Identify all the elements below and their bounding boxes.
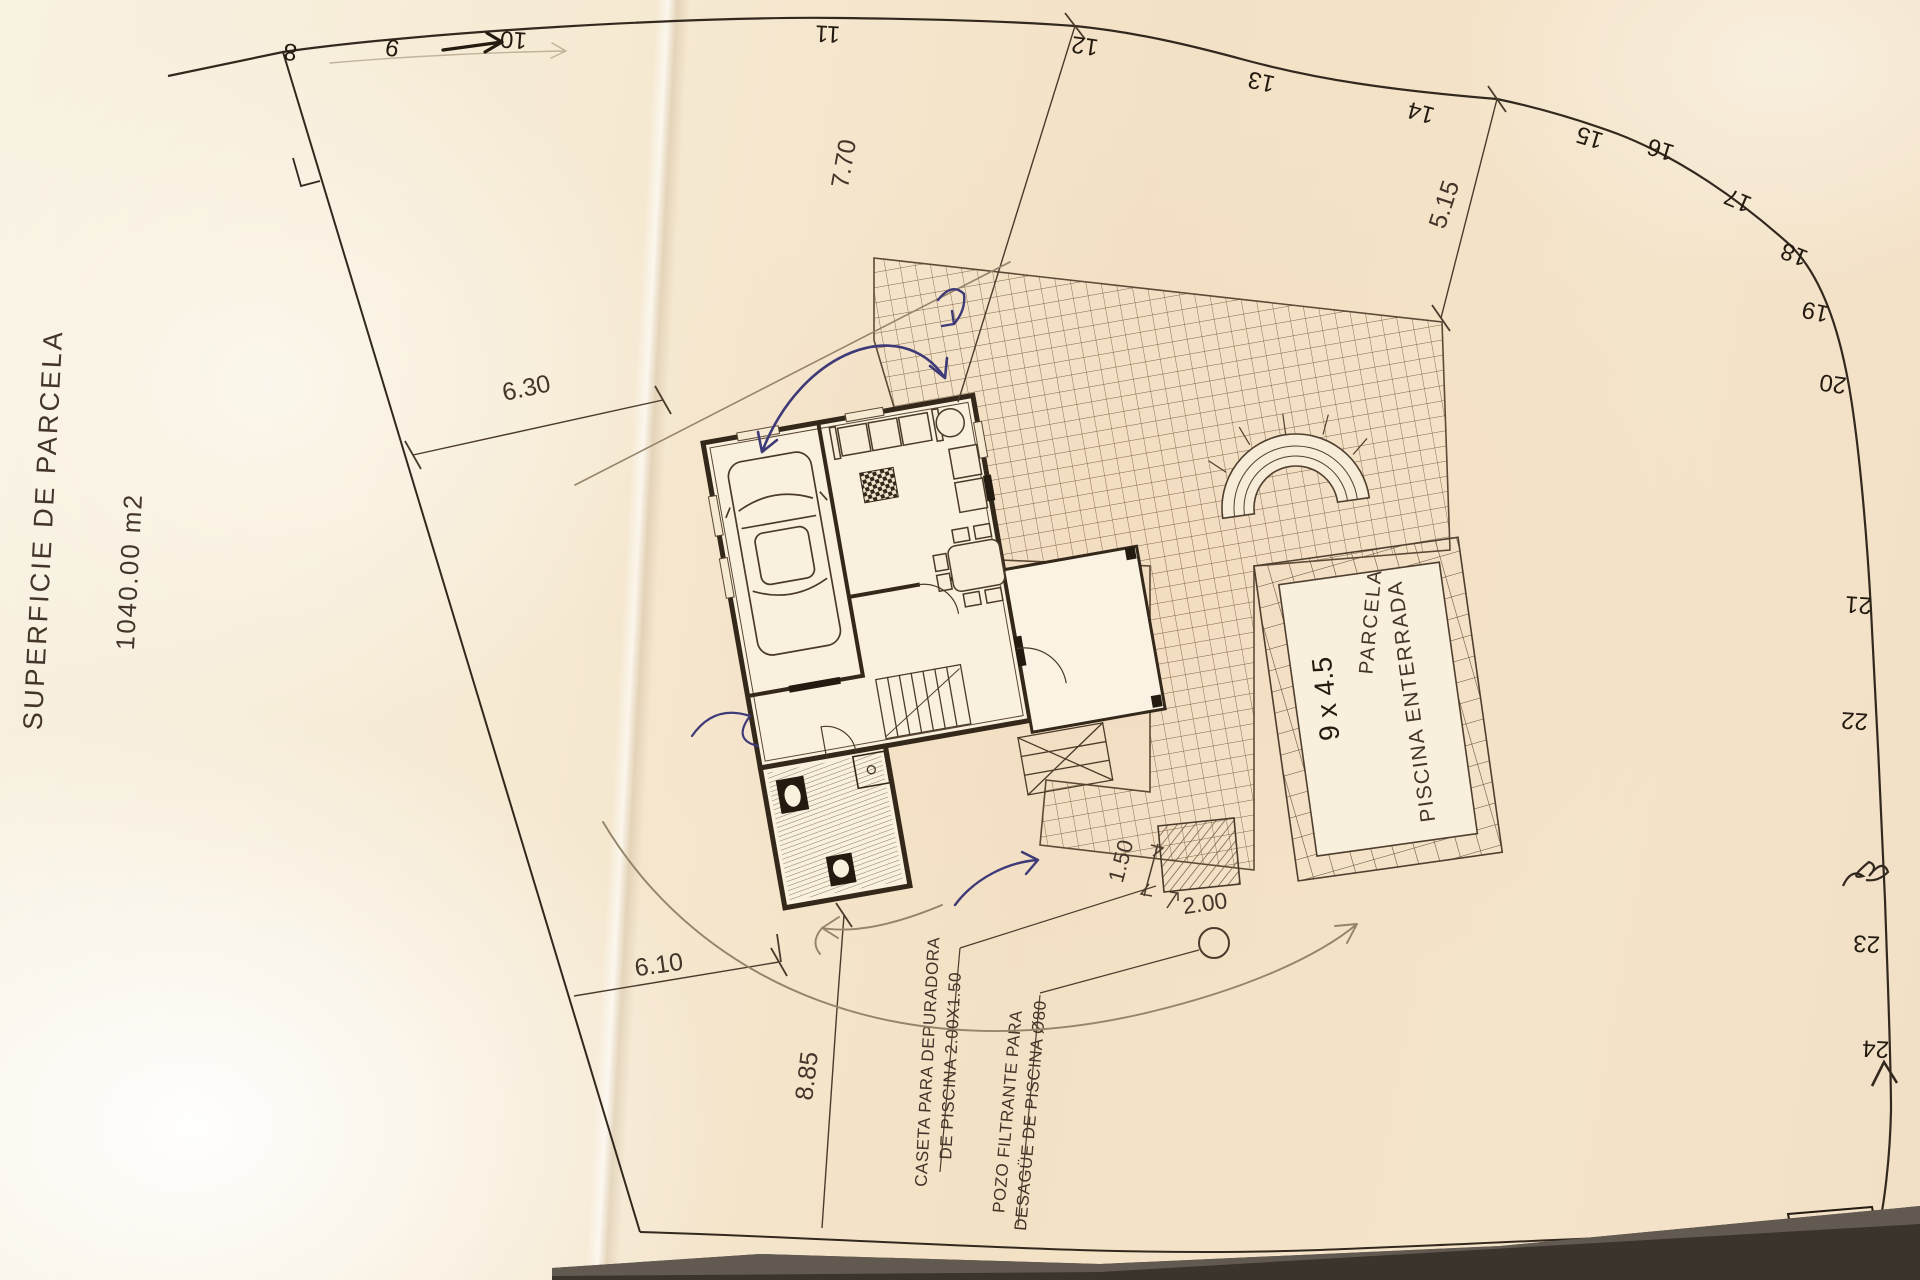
boundary-mark-14: 14: [1405, 96, 1438, 129]
photo-edge-shadow: [552, 1206, 1920, 1280]
boundary-mark-22: 22: [1840, 706, 1869, 735]
direction-chevron: [1872, 1062, 1897, 1086]
boundary-mark-23: 23: [1853, 929, 1881, 957]
faint-arrow: [330, 43, 566, 63]
dim-630: 6.30: [500, 369, 553, 407]
boundary-mark-8: 8: [283, 37, 299, 65]
pozo-leader: [1040, 950, 1199, 993]
dim-515: 5.15: [1424, 177, 1466, 232]
sheet-margin-texts: SUPERFICIE DE PARCELA 1040.00 m2: [18, 328, 149, 731]
caseta-leader: [960, 886, 1156, 948]
boundary-mark-16: 16: [1644, 132, 1677, 166]
boundary-mark-12: 12: [1070, 30, 1100, 60]
caseta-note-line2: DE PISCINA 2.00X1.50: [936, 972, 965, 1160]
boundary-mark-13: 13: [1246, 65, 1278, 97]
boundary-mark-21: 21: [1844, 590, 1873, 619]
dim-770: 7.70: [826, 137, 862, 190]
coffee-table: [860, 467, 899, 502]
ink-arrow-top: [443, 33, 502, 52]
margin-area: 1040.00 m2: [110, 492, 148, 651]
blue-bottom-arrow: [955, 852, 1038, 905]
boundary-mark-11: 11: [814, 19, 840, 47]
boundary-mark-24: 24: [1862, 1034, 1890, 1062]
boundary-mark-19: 19: [1800, 295, 1832, 327]
short-left-arrow: [815, 905, 942, 954]
scratched-scribble: [1843, 862, 1888, 886]
pozo-circle: [1199, 928, 1229, 958]
dim-610: 6.10: [633, 948, 685, 983]
blue-squiggle: [692, 713, 758, 746]
porch-annex: [1004, 546, 1166, 732]
dim-885: 8.85: [790, 1050, 824, 1102]
boundary-mark-15: 15: [1573, 120, 1606, 154]
site-plan-drawing: PISCINA ENTERRADA 9 x 4.5: [0, 0, 1920, 1280]
site-plan-photo: PISCINA ENTERRADA 9 x 4.5: [0, 0, 1920, 1280]
boundary-mark-20: 20: [1818, 368, 1848, 398]
caseta-depuradora: [1158, 818, 1240, 892]
dim-200: 2.00: [1181, 887, 1229, 919]
margin-title: SUPERFICIE DE PARCELA: [18, 328, 69, 731]
boundary-mark-10: 10: [499, 25, 528, 54]
